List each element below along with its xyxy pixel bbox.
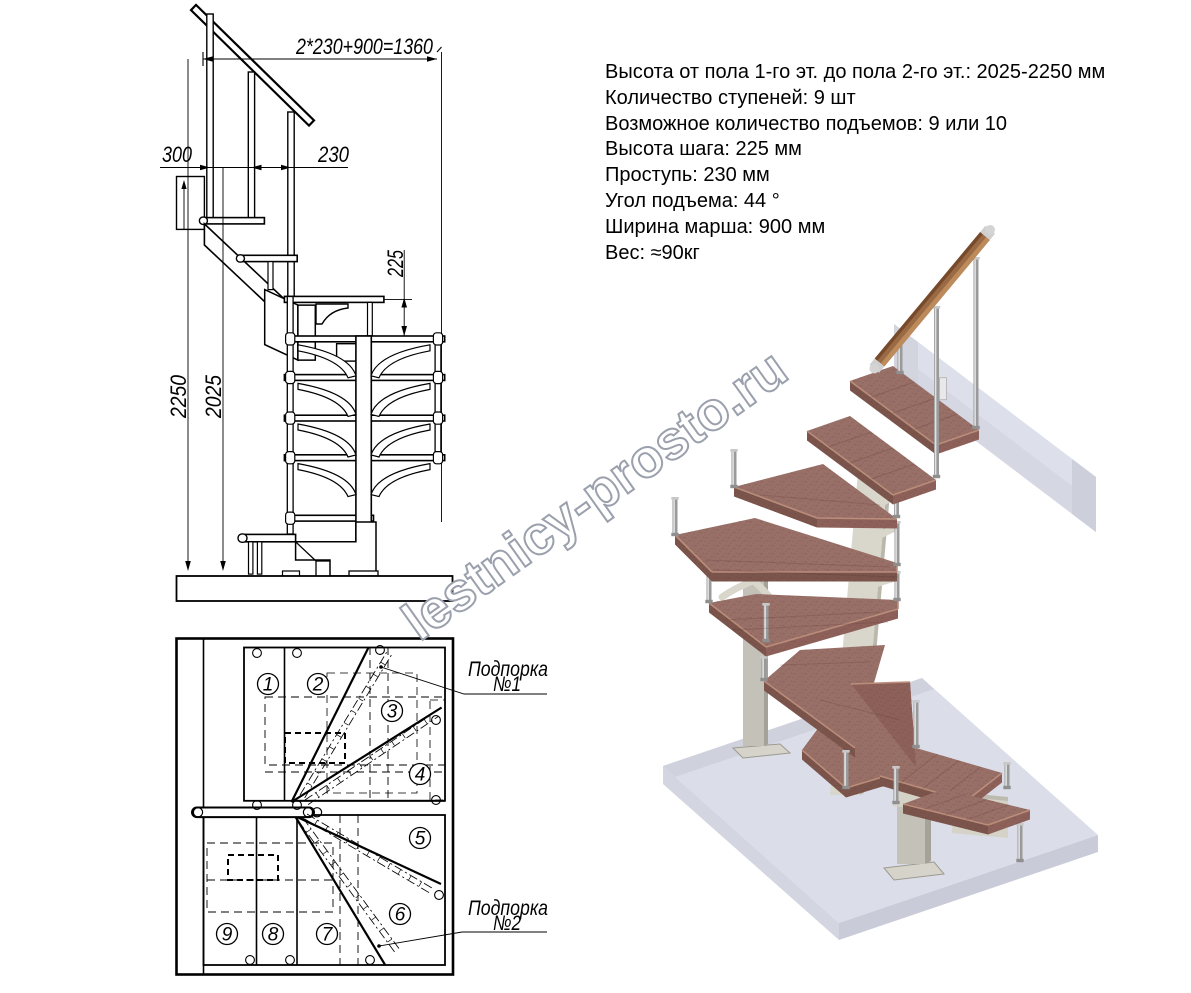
svg-text:№1: №1 <box>493 673 521 696</box>
svg-text:3: 3 <box>387 702 398 723</box>
svg-text:2*230+900=1360: 2*230+900=1360 <box>295 34 433 59</box>
svg-text:2: 2 <box>312 675 324 696</box>
svg-text:9: 9 <box>222 925 233 946</box>
svg-text:2025: 2025 <box>201 374 226 419</box>
svg-text:4: 4 <box>415 765 426 786</box>
svg-text:8: 8 <box>268 925 279 946</box>
svg-text:230: 230 <box>317 142 349 167</box>
svg-text:6: 6 <box>395 905 406 926</box>
svg-text:2250: 2250 <box>166 374 191 419</box>
svg-text:1: 1 <box>263 675 274 696</box>
svg-text:7: 7 <box>322 925 334 946</box>
svg-text:225: 225 <box>383 249 408 277</box>
svg-text:5: 5 <box>415 829 426 850</box>
